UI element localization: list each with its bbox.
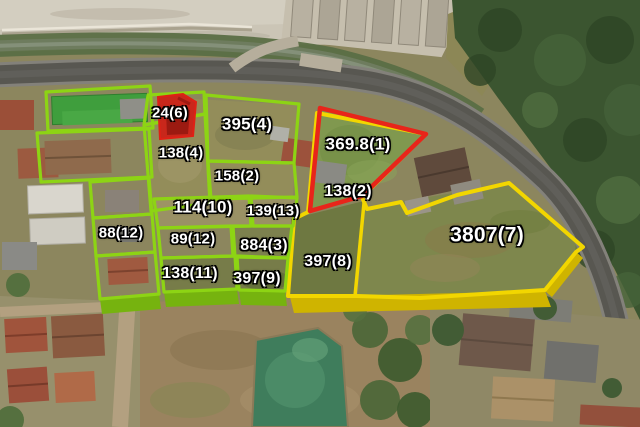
parcel-overlay: [0, 0, 640, 427]
parcel-label-397-9: 397(9): [233, 271, 280, 287]
parcel-label-138-2: 138(2): [324, 184, 371, 200]
parcel-label-89-12: 89(12): [171, 232, 216, 247]
green-parcel-walls: [100, 289, 287, 314]
parcel-label-397-8: 397(8): [304, 254, 351, 270]
parcel-label-884-3: 884(3): [240, 238, 287, 254]
aerial-parcel-map: 24(6) 395(4) 138(4) 158(2) 369.8(1) 138(…: [0, 0, 640, 427]
parcel-label-114-10: 114(10): [173, 199, 232, 216]
parcel-divider-397-8: [355, 203, 364, 296]
parcel-label-139-13: 139(13): [246, 204, 299, 219]
parcel-label-3807-7: 3807(7): [450, 225, 524, 246]
parcel-label-24-6: 24(6): [152, 106, 188, 121]
parcel-polygon-col-bottom: [96, 252, 159, 299]
parcel-label-138-4: 138(4): [159, 146, 204, 161]
parcel-polygon-building-a: [46, 86, 153, 131]
parcel-label-395-4: 395(4): [222, 116, 272, 133]
parcel-label-138-11: 138(11): [162, 266, 218, 282]
parcel-polygon-building-b: [37, 129, 152, 182]
parcel-polygon-col-top: [90, 178, 152, 218]
parcel-label-88-12: 88(12): [99, 226, 144, 241]
parcel-label-369-8-1: 369.8(1): [326, 136, 391, 153]
parcel-label-158-2: 158(2): [215, 169, 260, 184]
